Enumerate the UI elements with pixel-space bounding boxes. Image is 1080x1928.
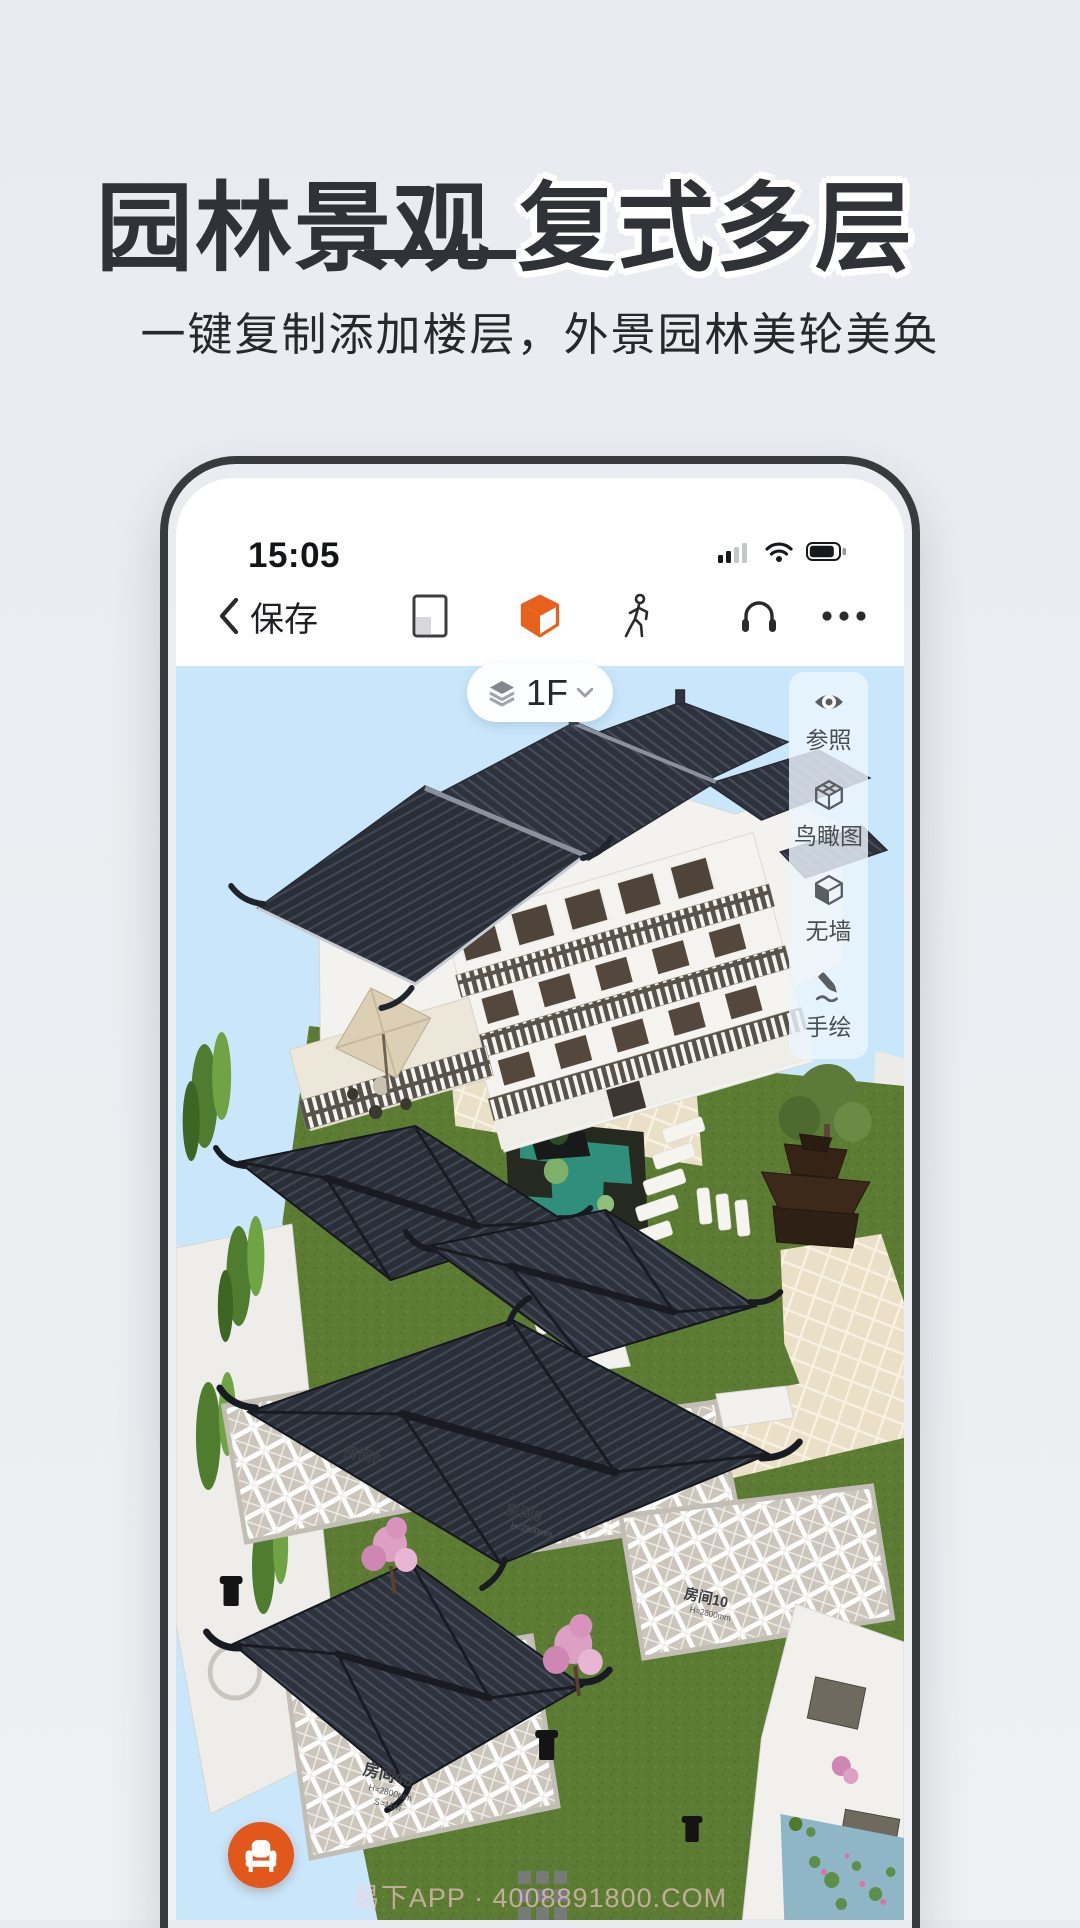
signal-icon <box>718 540 752 564</box>
headset-icon <box>738 595 780 637</box>
walkthrough-icon <box>620 593 654 639</box>
back-button-label: 保存 <box>250 592 318 641</box>
page-title-part1: 园林景观 <box>96 174 492 283</box>
walkthrough-button[interactable] <box>620 592 654 640</box>
more-button[interactable] <box>821 592 867 640</box>
side-item-label: 无墙 <box>806 912 852 946</box>
sketch-pencil-icon <box>813 970 845 1002</box>
side-item-reference[interactable]: 参照 <box>789 689 868 755</box>
birdseye-cube-icon <box>813 779 845 811</box>
side-item-label: 参照 <box>806 721 852 755</box>
floorplan-view-icon <box>412 594 448 638</box>
page-subtitle: 一键复制添加楼层，外景园林美轮美奂 <box>0 298 1080 363</box>
eye-icon <box>813 689 845 715</box>
page-title-part2: 复式多层 <box>518 174 914 283</box>
view-3d-button[interactable] <box>517 592 563 640</box>
more-dots-icon <box>821 610 867 622</box>
floor-selector-label: 1F <box>526 672 568 714</box>
floorplan-view-button[interactable] <box>412 592 448 640</box>
side-item-label: 鸟瞰图 <box>794 817 863 851</box>
page-title: 园林景观复式多层 <box>0 149 1080 290</box>
status-icons <box>718 540 848 564</box>
chevron-down-icon <box>577 688 593 698</box>
wifi-icon <box>765 541 793 563</box>
floor-selector[interactable]: 1F <box>467 663 613 722</box>
watermark-text: 易下APP · 4008891800.COM <box>176 1876 904 1915</box>
battery-icon <box>806 542 848 562</box>
status-time: 15:05 <box>248 536 340 576</box>
title-underline <box>364 250 516 259</box>
back-chevron-icon <box>218 597 240 635</box>
support-button[interactable] <box>738 592 780 640</box>
side-item-birdseye[interactable]: 鸟瞰图 <box>789 779 868 851</box>
cube-3d-view-icon <box>517 593 563 639</box>
back-button[interactable]: 保存 <box>218 592 318 640</box>
side-item-nowall[interactable]: 无墙 <box>789 874 868 946</box>
armchair-icon <box>243 1838 279 1873</box>
layers-icon <box>487 679 517 707</box>
side-tool-panel: 参照 鸟瞰图 无墙 手绘 <box>789 672 868 1059</box>
side-item-label: 手绘 <box>806 1008 852 1042</box>
side-item-sketch[interactable]: 手绘 <box>789 970 868 1042</box>
no-wall-cube-icon <box>813 874 845 906</box>
